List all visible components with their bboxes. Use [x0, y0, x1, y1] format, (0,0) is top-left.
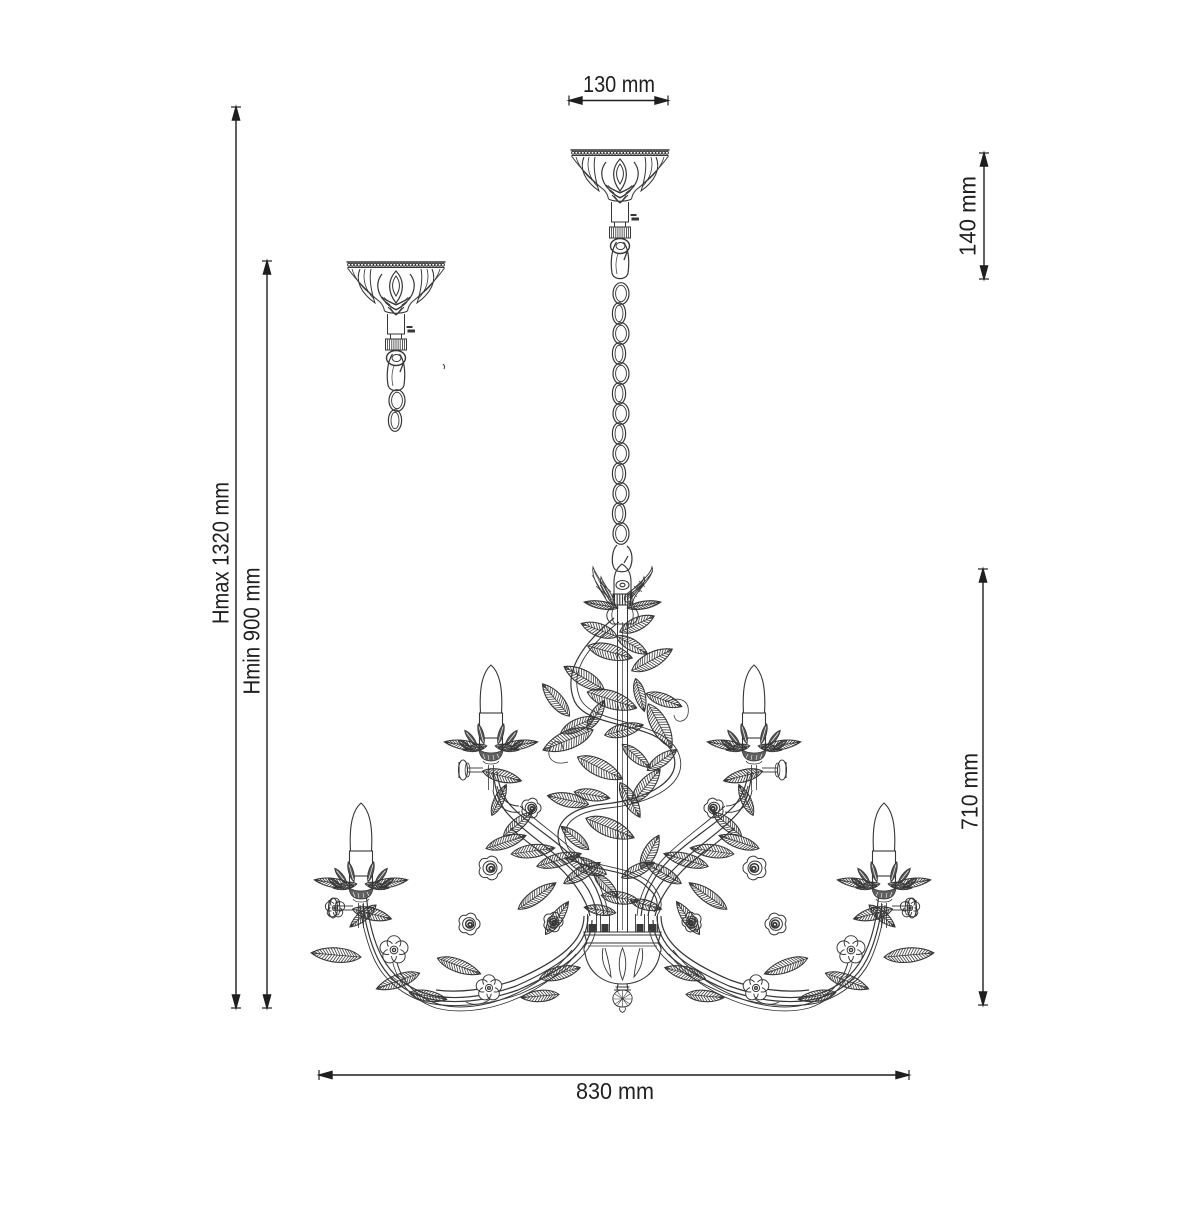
- svg-text:830 mm: 830 mm: [576, 1078, 654, 1104]
- svg-text:Hmax 1320 mm: Hmax 1320 mm: [208, 482, 234, 624]
- svg-text:130 mm: 130 mm: [583, 71, 655, 97]
- svg-text:Hmin 900 mm: Hmin 900 mm: [239, 568, 265, 695]
- svg-text:140 mm: 140 mm: [955, 176, 981, 256]
- svg-text:710 mm: 710 mm: [957, 753, 983, 830]
